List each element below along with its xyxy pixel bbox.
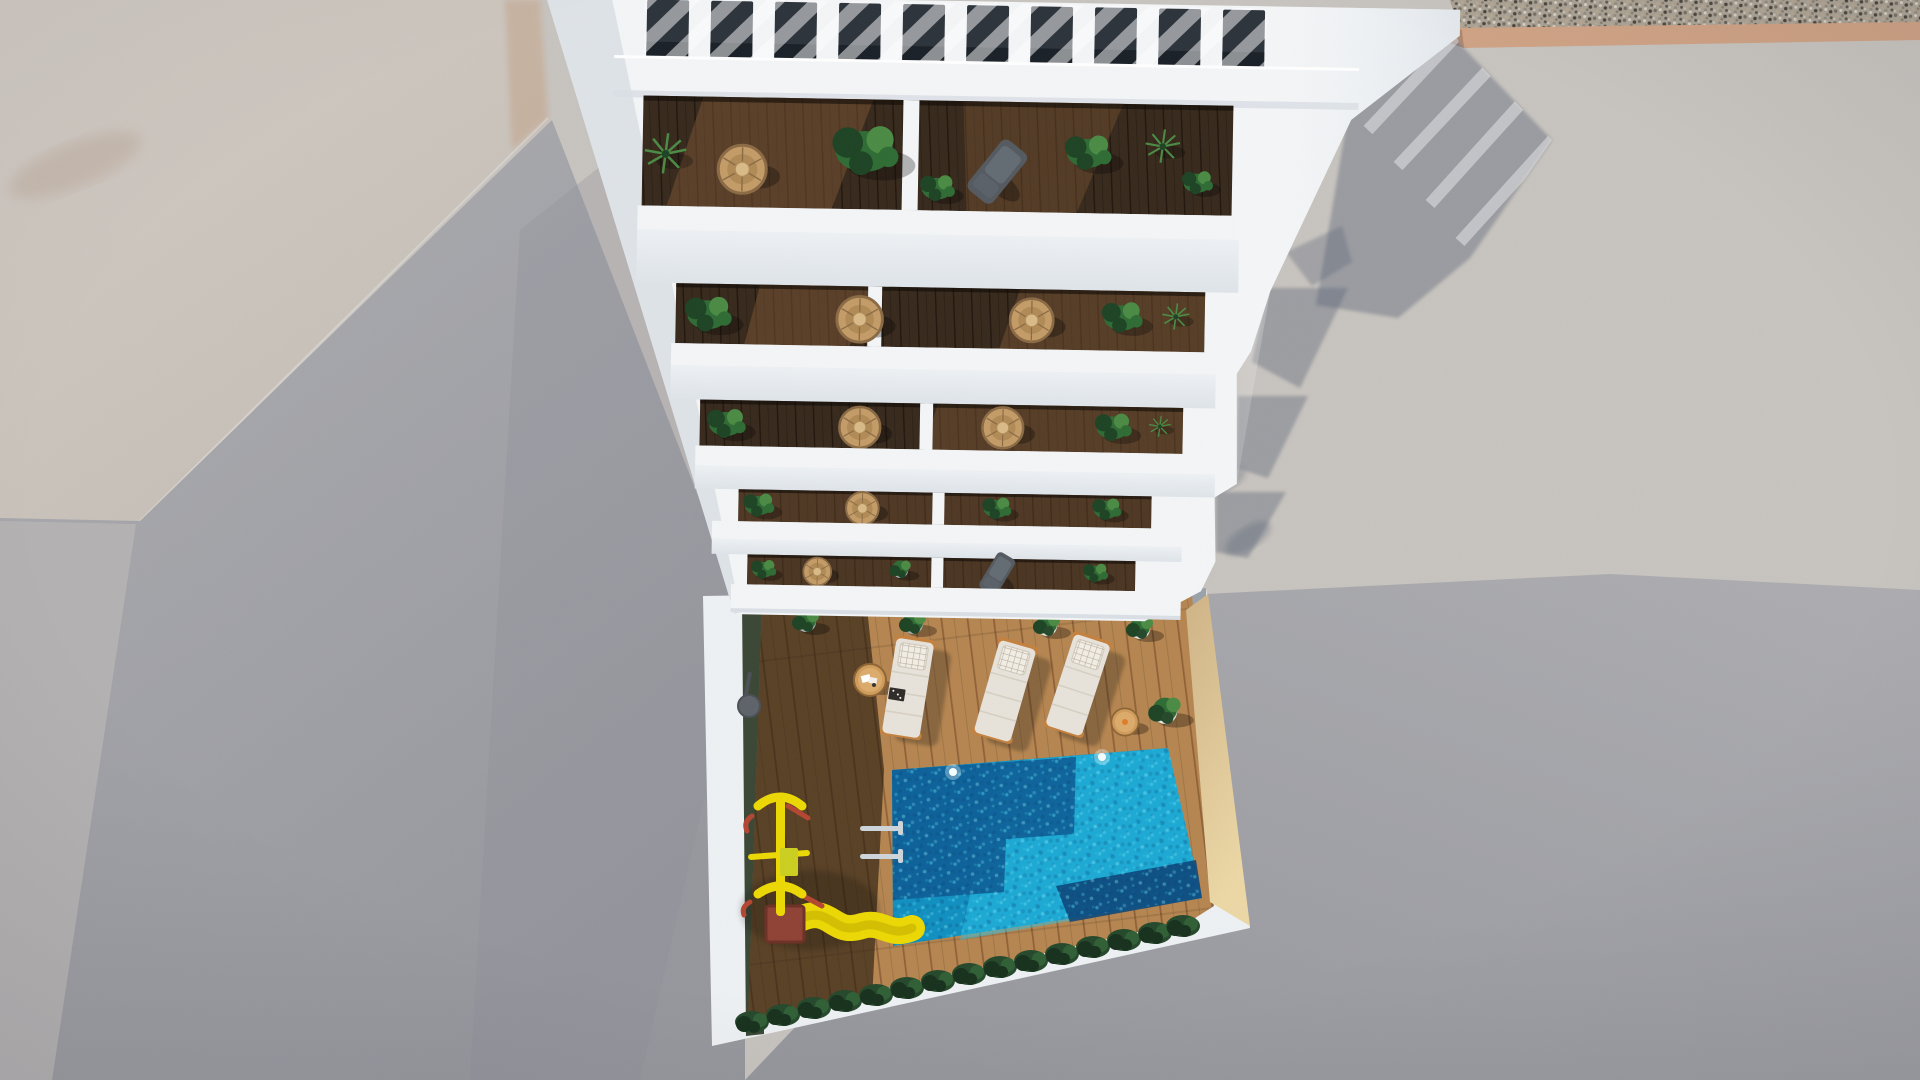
render-canvas: Top-down aerial 3D architectural render … bbox=[0, 0, 1920, 1080]
aerial-building-render: Top-down aerial 3D architectural render … bbox=[0, 0, 1920, 1080]
vignette-overlay bbox=[0, 0, 1920, 1080]
